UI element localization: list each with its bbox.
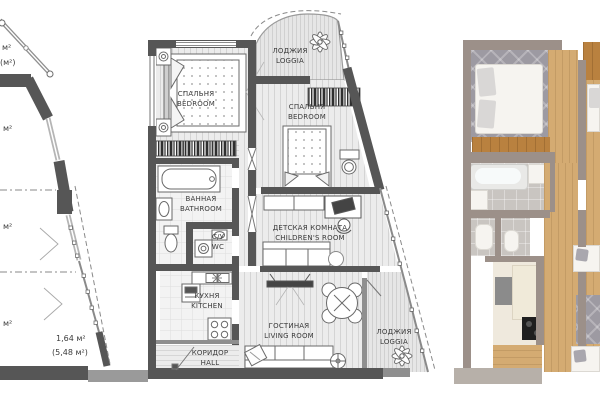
- room-label-living: ГОСТИНАЯ LIVING ROOM: [264, 322, 314, 342]
- area-label-cut-5: м²: [3, 319, 12, 328]
- room-label-wc: С/У WC: [212, 233, 224, 253]
- plant-icon-bottom: [392, 346, 412, 366]
- room-label-hall: КОРИДОР HALL: [192, 349, 229, 369]
- dresser-3d: [472, 137, 550, 152]
- adjacent-unit-partial-plan: м² (м²) м² м² м² 1,64 м² (5,48 м²): [0, 0, 148, 400]
- room-label-loggia-bottom: ЛОДЖИЯ LOGGIA: [376, 328, 411, 348]
- loggia-area-total-value: (5,48 м²): [52, 348, 88, 357]
- wall-3d: [495, 215, 501, 256]
- bathtub-icon: [158, 166, 220, 192]
- wall-3d: [536, 256, 544, 345]
- pillow-3d: [589, 88, 600, 108]
- shelf-icon: [264, 196, 324, 210]
- pillow-3d: [477, 99, 496, 128]
- bathtub-basin-3d: [475, 168, 521, 184]
- window-ticks: [69, 226, 97, 324]
- wall-3d: [485, 256, 543, 262]
- wall-3d: [550, 152, 555, 212]
- render-3d-plan: [440, 0, 600, 400]
- area-label-cut-3: м²: [3, 124, 12, 133]
- plant-icon-top: [310, 32, 330, 52]
- room-label-loggia-top: ЛОДЖИЯ LOGGIA: [272, 47, 307, 67]
- round-rug-icon: [329, 252, 344, 267]
- wall-3d-bottom: [454, 368, 542, 384]
- bath-sink-icon: [156, 198, 172, 220]
- wall-3d: [463, 152, 555, 163]
- washbasin-3d: [470, 190, 488, 210]
- toilet-3d: [504, 230, 519, 252]
- main-apartment-plan: СПАЛЬНЯ BEDROOM ЛОДЖИЯ LOGGIA СПАЛЬНЯ BE…: [148, 0, 448, 400]
- floor-plan-collage: м² (м²) м² м² м² 1,64 м² (5,48 м²): [0, 0, 600, 400]
- area-label-cut-1: м²: [2, 43, 11, 52]
- children-sofa-icon: [263, 242, 330, 266]
- room-label-children: ДЕТСКАЯ КОМНАТА CHILDREN'S ROOM: [273, 224, 348, 244]
- wall-3d-right: [578, 60, 586, 180]
- wall-3d: [463, 210, 550, 218]
- wall-3d-right: [578, 272, 586, 346]
- loggia-area-value: 1,64 м²: [56, 334, 86, 343]
- wall-3d-left: [463, 42, 471, 372]
- wall-3d-right: [578, 210, 586, 247]
- room-label-kitchen: КУХНЯ KITCHEN: [191, 292, 223, 312]
- burner-3d: [526, 321, 532, 327]
- dining-table-icon: [322, 283, 362, 323]
- fan-rug-icon: [331, 354, 346, 369]
- living-sofa-icon: [245, 345, 333, 368]
- bedroom-wood-floor-3d: [548, 50, 578, 163]
- sofa-pillow-3d: [573, 349, 586, 362]
- wall-3d-top: [463, 40, 562, 50]
- pillow-3d: [477, 67, 497, 97]
- bed2-icon: [283, 126, 331, 188]
- room-label-bathroom: ВАННАЯ BATHROOM: [180, 195, 222, 215]
- ceiling-light-icon: [212, 273, 222, 283]
- area-label-cut-4: м²: [3, 222, 12, 231]
- fridge-3d: [495, 277, 512, 305]
- door-swing-marks: [40, 228, 62, 320]
- room-label-bedroom-1: СПАЛЬНЯ BEDROOM: [177, 90, 215, 110]
- room-label-bedroom-2: СПАЛЬНЯ BEDROOM: [288, 103, 326, 123]
- toilet-3d: [475, 224, 493, 250]
- stove-icon: [208, 318, 231, 340]
- toilet-icon: [164, 226, 178, 252]
- area-label-cut-2: (м²): [0, 58, 15, 67]
- washing-machine-icon: [195, 240, 212, 257]
- sofa-pillow-3d: [575, 248, 589, 262]
